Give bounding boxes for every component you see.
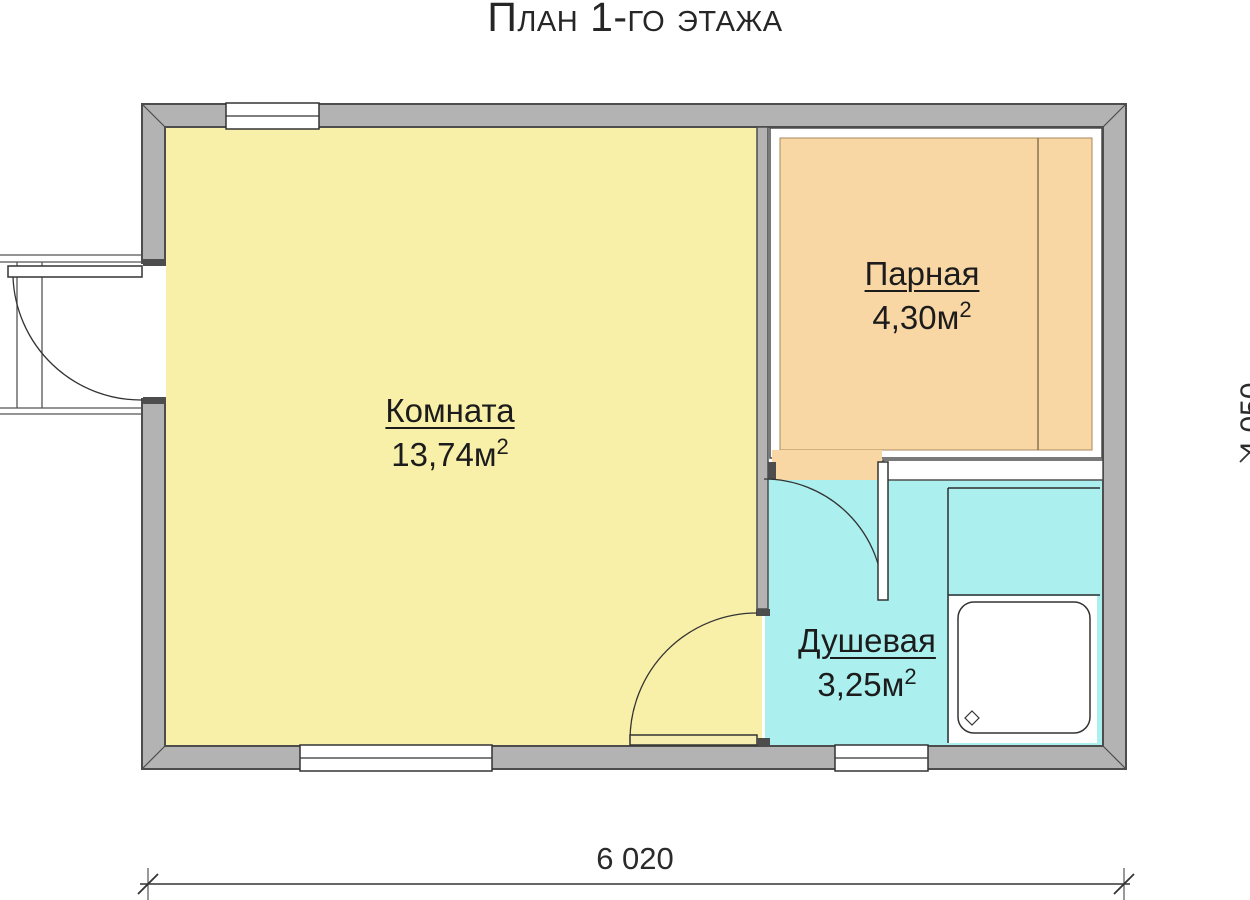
dimension-width-label: 6 020 [555,841,715,877]
sauna-door-jamb [768,462,776,479]
entrance-jamb-bottom [143,397,166,404]
floor-plan-page: План 1-го этажа [0,0,1250,900]
entrance-door-swing-arc [13,277,142,400]
area-superscript: 2 [959,297,971,322]
area-value: 13,74м [391,436,496,473]
room-area: 4,30м2 [802,299,1042,337]
room-door-jamb-bottom [757,738,770,745]
room-label-parnaya: Парная 4,30м2 [802,255,1042,337]
area-value: 4,30м [872,299,959,336]
room-name: Душевая [747,622,987,660]
room-label-dushevaya: Душевая 3,25м2 [747,622,987,704]
room-area: 3,25м2 [747,666,987,704]
area-value: 3,25м [817,666,904,703]
entrance-jamb-top [143,259,166,266]
area-superscript: 2 [904,664,916,689]
room-door-jamb [756,609,770,616]
interior-wall-horizontal [883,460,1103,480]
sauna-doorway-floor [772,450,882,480]
window-bottom-left [300,745,492,771]
window-top [226,103,319,129]
room-area: 13,74м2 [320,436,580,474]
room-name: Комната [320,392,580,430]
sauna-door-leaf [878,462,888,600]
room-label-komnata: Комната 13,74м2 [320,392,580,474]
entrance-door-leaf [8,266,142,277]
floor-plan-drawing [0,0,1250,900]
area-superscript: 2 [497,434,509,459]
window-bottom-right [835,745,928,771]
room-name: Парная [802,255,1042,293]
interior-wall-vertical [757,127,768,609]
porch [0,255,142,414]
dimension-height-label: 4 050 [1235,375,1250,465]
entrance-opening [140,264,166,398]
room-door-leaf [630,735,757,745]
